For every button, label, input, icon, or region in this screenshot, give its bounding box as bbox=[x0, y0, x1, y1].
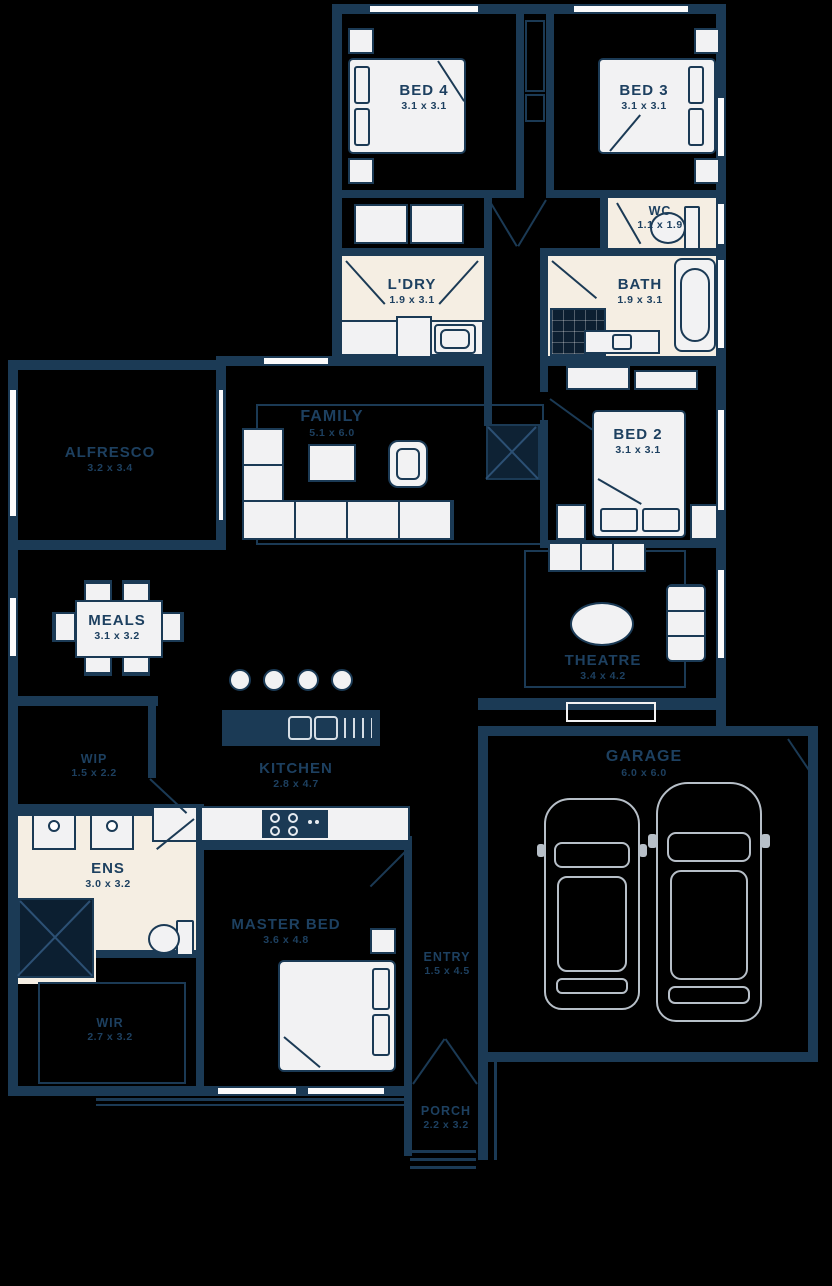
wall-segment bbox=[8, 696, 18, 1096]
window bbox=[716, 96, 726, 158]
wall-segment bbox=[8, 1086, 216, 1096]
bath-dims: 1.9 x 3.1 bbox=[617, 294, 662, 306]
burner bbox=[288, 826, 298, 836]
bed4-label: BED 4 3.1 x 3.1 bbox=[399, 82, 448, 112]
entry-name: ENTRY bbox=[424, 950, 471, 964]
theatre-label: THEATRE 3.4 x 4.2 bbox=[565, 652, 642, 682]
wall-segment bbox=[342, 248, 492, 256]
wall-segment bbox=[478, 726, 818, 736]
porch-step bbox=[410, 1150, 476, 1153]
cooktop-knob bbox=[315, 820, 319, 824]
wall-segment bbox=[808, 726, 818, 1062]
window bbox=[306, 1086, 386, 1096]
burner bbox=[270, 826, 280, 836]
sink-bowl bbox=[288, 716, 312, 740]
pillow bbox=[354, 108, 370, 146]
porch-name: PORCH bbox=[421, 1104, 471, 1118]
pillow bbox=[688, 66, 704, 104]
ens-name: ENS bbox=[85, 860, 130, 877]
side-table bbox=[370, 928, 396, 954]
master-dims: 3.6 x 4.8 bbox=[231, 934, 340, 946]
porch-step bbox=[410, 1158, 476, 1161]
wir-label: WIR 2.7 x 3.2 bbox=[87, 1016, 132, 1043]
bar-stool bbox=[229, 669, 251, 691]
car-large bbox=[656, 782, 762, 1022]
car-mirror bbox=[761, 834, 770, 848]
bed2-label: BED 2 3.1 x 3.1 bbox=[613, 426, 662, 456]
toilet-cistern bbox=[684, 206, 700, 250]
wc-name: WC bbox=[637, 204, 682, 218]
bed3-name: BED 3 bbox=[619, 82, 668, 99]
garage-dims: 6.0 x 6.0 bbox=[606, 767, 682, 779]
door-swing bbox=[488, 199, 518, 246]
sink-drainer bbox=[344, 718, 372, 738]
theatre-dims: 3.4 x 4.2 bbox=[565, 670, 642, 682]
porch-step bbox=[410, 1166, 476, 1169]
window bbox=[8, 596, 18, 658]
bed2-robe bbox=[634, 370, 698, 390]
master-label: MASTER BED 3.6 x 4.8 bbox=[231, 916, 340, 946]
family-name: FAMILY bbox=[300, 408, 363, 426]
wip-name: WIP bbox=[71, 752, 116, 766]
meals-name: MEALS bbox=[88, 612, 146, 629]
wall-segment bbox=[8, 540, 226, 550]
side-table bbox=[556, 504, 586, 540]
wall-segment bbox=[484, 198, 492, 360]
ldry-name: L'DRY bbox=[388, 276, 437, 293]
wall-segment bbox=[546, 190, 724, 198]
side-table bbox=[694, 158, 720, 184]
window bbox=[572, 4, 690, 14]
bath-name: BATH bbox=[617, 276, 662, 293]
car-small bbox=[544, 798, 640, 1010]
bar-stool bbox=[297, 669, 319, 691]
car-rear-window bbox=[668, 986, 750, 1004]
wall-segment bbox=[516, 14, 524, 194]
dining-chair bbox=[160, 612, 184, 642]
entry-dims: 1.5 x 4.5 bbox=[424, 965, 471, 977]
car-rear-window bbox=[556, 978, 628, 994]
bed2-robe bbox=[566, 366, 630, 390]
family-dims: 5.1 x 6.0 bbox=[300, 427, 363, 439]
alfresco-dims: 3.2 x 3.4 bbox=[65, 462, 156, 474]
bed2-dims: 3.1 x 3.1 bbox=[613, 444, 662, 456]
car-mirror bbox=[537, 844, 545, 857]
meals-label: MEALS 3.1 x 3.2 bbox=[88, 612, 146, 642]
floor-plan: BED 4 3.1 x 3.1 BED 3 3.1 x 3.1 WC 1.1 x… bbox=[0, 0, 832, 1286]
bed2-name: BED 2 bbox=[613, 426, 662, 443]
garage-label: GARAGE 6.0 x 6.0 bbox=[606, 748, 682, 779]
wall-segment bbox=[540, 356, 726, 366]
wall-segment bbox=[8, 696, 158, 706]
laundry-cupboard bbox=[396, 316, 432, 358]
alfresco-label: ALFRESCO 3.2 x 3.4 bbox=[65, 444, 156, 474]
bed3-dims: 3.1 x 3.1 bbox=[619, 100, 668, 112]
kitchen-dims: 2.8 x 4.7 bbox=[259, 778, 333, 790]
armchair-seat bbox=[396, 448, 420, 480]
bar-stool bbox=[331, 669, 353, 691]
car-windshield bbox=[554, 842, 630, 868]
bath-label: BATH 1.9 x 3.1 bbox=[617, 276, 662, 306]
wc-label: WC 1.1 x 1.9 bbox=[637, 204, 682, 231]
porch-dims: 2.2 x 3.2 bbox=[421, 1119, 471, 1131]
car-roof bbox=[670, 870, 748, 980]
toilet-bowl bbox=[148, 924, 180, 954]
bed4-robe bbox=[410, 204, 464, 244]
laundry-tub-bowl bbox=[440, 329, 470, 349]
window bbox=[716, 408, 726, 512]
wc-dims: 1.1 x 1.9 bbox=[637, 219, 682, 231]
sink-bowl bbox=[314, 716, 338, 740]
deck-edge-line bbox=[96, 1098, 406, 1101]
sofa-horizontal bbox=[242, 500, 454, 540]
bed4-robe bbox=[354, 204, 408, 244]
burner bbox=[288, 813, 298, 823]
sliding-glass-door bbox=[217, 388, 225, 522]
car-mirror bbox=[639, 844, 647, 857]
bathtub-inner bbox=[680, 268, 710, 342]
pillow bbox=[372, 968, 390, 1010]
pillow bbox=[642, 508, 680, 532]
entry-label: ENTRY 1.5 x 4.5 bbox=[424, 950, 471, 977]
sofa-vertical bbox=[242, 428, 284, 504]
porch-label: PORCH 2.2 x 3.2 bbox=[421, 1104, 471, 1131]
wall-segment bbox=[332, 4, 342, 360]
pillow bbox=[372, 1014, 390, 1056]
door-swing bbox=[517, 199, 547, 246]
wall-segment bbox=[148, 696, 156, 778]
hall-linen bbox=[525, 94, 545, 122]
wall-segment bbox=[540, 248, 548, 360]
wall-segment bbox=[8, 360, 226, 370]
theatre-cushions bbox=[548, 542, 646, 572]
basin bbox=[106, 820, 118, 832]
side-table bbox=[348, 158, 374, 184]
alfresco-name: ALFRESCO bbox=[65, 444, 156, 461]
ldry-label: L'DRY 1.9 x 3.1 bbox=[388, 276, 437, 306]
burner bbox=[270, 813, 280, 823]
basin bbox=[48, 820, 60, 832]
wall-segment bbox=[478, 726, 488, 1160]
car-mirror bbox=[648, 834, 657, 848]
window bbox=[716, 258, 726, 350]
basin bbox=[612, 334, 632, 350]
wir-name: WIR bbox=[87, 1016, 132, 1030]
wall-segment bbox=[600, 198, 608, 254]
front-door-swing bbox=[412, 1038, 445, 1084]
wir-dims: 2.7 x 3.2 bbox=[87, 1031, 132, 1043]
hall-robe bbox=[525, 20, 545, 92]
window bbox=[716, 202, 726, 246]
theatre-sofa bbox=[666, 584, 706, 662]
bed4-name: BED 4 bbox=[399, 82, 448, 99]
side-table bbox=[694, 28, 720, 54]
side-table bbox=[690, 504, 718, 540]
bar-stool bbox=[263, 669, 285, 691]
front-door-swing bbox=[445, 1038, 478, 1084]
wip-dims: 1.5 x 2.2 bbox=[71, 767, 116, 779]
car-windshield bbox=[667, 832, 751, 862]
deck-edge-line bbox=[96, 1104, 406, 1106]
wall-segment bbox=[342, 190, 524, 198]
ldry-dims: 1.9 x 3.1 bbox=[388, 294, 437, 306]
window bbox=[262, 356, 330, 366]
window bbox=[368, 4, 480, 14]
door-swing bbox=[549, 398, 592, 430]
car-roof bbox=[557, 876, 627, 972]
kitchen-label: KITCHEN 2.8 x 4.7 bbox=[259, 760, 333, 790]
wall-segment bbox=[404, 1086, 412, 1156]
wall-segment bbox=[298, 1086, 306, 1096]
window bbox=[8, 388, 18, 518]
porch-side-line bbox=[494, 1062, 497, 1160]
kitchen-name: KITCHEN bbox=[259, 760, 333, 777]
pillow bbox=[600, 508, 638, 532]
garage-name: GARAGE bbox=[606, 748, 682, 766]
window bbox=[716, 568, 726, 660]
master-name: MASTER BED bbox=[231, 916, 340, 933]
coffee-table bbox=[308, 444, 356, 482]
ens-dims: 3.0 x 3.2 bbox=[85, 878, 130, 890]
dining-chair bbox=[52, 612, 76, 642]
wip-label: WIP 1.5 x 2.2 bbox=[71, 752, 116, 779]
bed4-dims: 3.1 x 3.1 bbox=[399, 100, 448, 112]
fridge-space bbox=[152, 806, 198, 842]
pillow bbox=[354, 66, 370, 104]
wall-niche bbox=[566, 702, 656, 722]
wall-segment bbox=[404, 836, 412, 1086]
wall-segment bbox=[216, 356, 492, 366]
theatre-ottoman bbox=[570, 602, 634, 646]
ens-label: ENS 3.0 x 3.2 bbox=[85, 860, 130, 890]
meals-dims: 3.1 x 3.2 bbox=[88, 630, 146, 642]
bed3-label: BED 3 3.1 x 3.1 bbox=[619, 82, 668, 112]
side-table bbox=[348, 28, 374, 54]
family-label: FAMILY 5.1 x 6.0 bbox=[300, 408, 363, 439]
cooktop-knob bbox=[308, 820, 312, 824]
wall-segment bbox=[478, 1052, 818, 1062]
theatre-name: THEATRE bbox=[565, 652, 642, 669]
wall-segment bbox=[546, 14, 554, 194]
wall-segment bbox=[540, 356, 548, 392]
pillow bbox=[688, 108, 704, 146]
window bbox=[216, 1086, 298, 1096]
